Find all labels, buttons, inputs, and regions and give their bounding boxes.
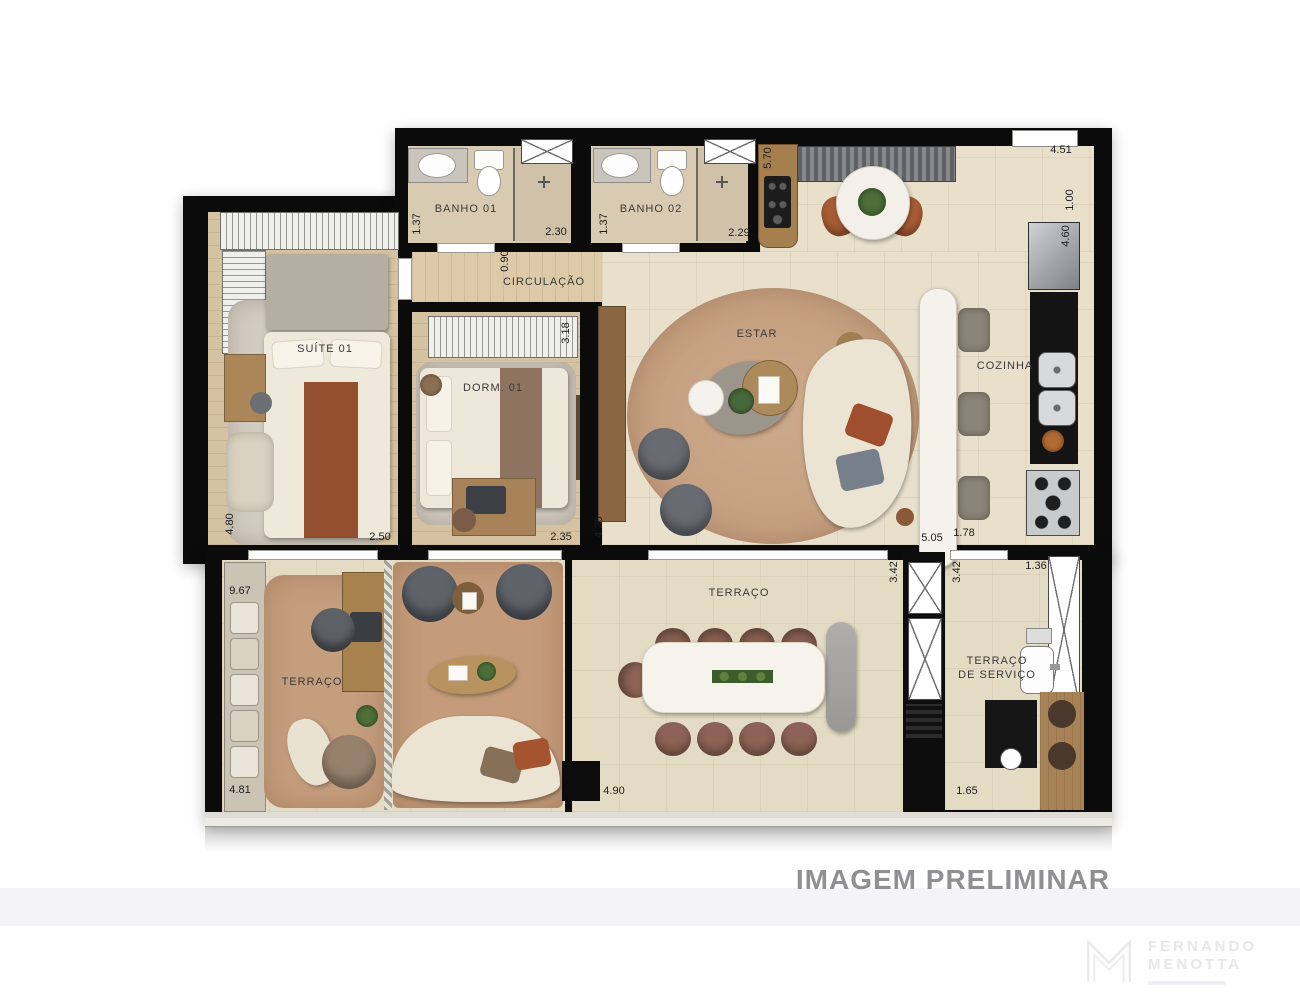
lounge-side-table-book: [462, 592, 477, 610]
terraco-chair-b4: [781, 722, 817, 756]
servico-small-box: [1026, 628, 1052, 644]
dimension-label: 1.00: [1064, 189, 1076, 210]
estar-side-table-white: [688, 380, 724, 416]
estar-tv-console: [598, 306, 626, 522]
logo-monogram-icon: [1083, 935, 1135, 987]
servico-door: [950, 550, 1008, 560]
kitchen-sink-2: [1038, 390, 1076, 426]
suite-door: [398, 258, 412, 300]
terraco-stone-bench: [826, 622, 856, 732]
dimension-label: 4.20: [593, 516, 605, 537]
terraco-black-column: [562, 761, 600, 801]
dimension-label: 2.50: [369, 531, 390, 543]
dimension-label: 2.30: [545, 226, 566, 238]
room-label-banho02: BANHO 02: [620, 203, 682, 215]
estar-book: [758, 376, 780, 404]
dimension-label: 1.36: [1025, 560, 1046, 572]
page: BANHO 01 BANHO 02 CIRCULAÇÃO SUÍTE 01 DO…: [0, 0, 1300, 1000]
servico-bowl: [1000, 748, 1022, 770]
banho01-door: [437, 243, 495, 253]
kitchen-stove: [1026, 470, 1080, 536]
logo-tagline: [1148, 981, 1226, 985]
banho02-drain-icon-v: [721, 176, 723, 188]
kitchen-cooktop: [764, 176, 791, 228]
suite-window: [248, 550, 378, 560]
dimension-label: 1.65: [956, 785, 977, 797]
parapet-strip-2: [205, 818, 1112, 827]
watermark-text: IMAGEM PRELIMINAR: [796, 864, 1110, 896]
dorm-desk-chair: [452, 508, 476, 532]
banho02-sink: [601, 153, 639, 178]
dimension-label: 5.70: [762, 147, 774, 168]
bench-cushion-1: [230, 602, 259, 634]
banho01-shaft-box: [521, 139, 573, 164]
shaft-box-1: [908, 562, 942, 614]
shaft-box-2: [908, 618, 942, 700]
room-label-terraco: TERRAÇO: [709, 587, 770, 599]
dimension-label: 3.42: [951, 561, 963, 582]
servico-faucet: [1050, 664, 1060, 670]
room-label-terraco-lateral: TERRAÇO: [282, 676, 343, 688]
terraco-table-planter: [712, 670, 773, 683]
room-label-cozinha: COZINHA: [977, 360, 1034, 372]
servico-stool-1: [1048, 700, 1076, 728]
terraco-chair-b3: [739, 722, 775, 756]
lounge-swivel-chair-2: [496, 564, 552, 620]
lounge-coffee-table-plant: [477, 662, 496, 681]
bench-cushion-5: [230, 746, 259, 778]
banho02-toilet: [660, 166, 684, 196]
kitchen-island: [919, 288, 957, 568]
suite-headboard-bench: [266, 254, 388, 330]
room-label-terraco-servico-line2: DE SERVIÇO: [958, 668, 1036, 682]
dimension-label: 5.05: [921, 532, 942, 544]
dimension-label: 1.37: [598, 213, 610, 234]
kitchen-stool-3: [958, 476, 990, 520]
dimension-label: 3.18: [560, 322, 572, 343]
lounge-coffee-table-book: [448, 665, 468, 681]
room-label-terraco-servico-line1: TERRAÇO: [958, 654, 1036, 668]
bench-cushion-4: [230, 710, 259, 742]
dorm-desk-computer: [466, 486, 506, 514]
room-label-suite01: SUÍTE 01: [297, 343, 353, 355]
dining-table-plant: [858, 188, 886, 216]
dimension-label: 2.35: [550, 531, 571, 543]
room-label-banho01: BANHO 01: [435, 203, 497, 215]
dimension-label: 3.42: [888, 561, 900, 582]
kitchen-fridge: [1028, 222, 1080, 290]
dimension-label: 0.90: [499, 250, 511, 271]
suite-bed-runner: [304, 382, 358, 538]
banho01-toilet: [477, 166, 501, 196]
dimension-label: 4.60: [1060, 225, 1072, 246]
logo-name-line1: FERNANDO: [1148, 939, 1257, 955]
dimension-label: 4.81: [229, 784, 250, 796]
room-label-terraco-servico: TERRAÇO DE SERVIÇO: [958, 654, 1036, 682]
dimension-label: 4.80: [224, 513, 236, 534]
suite-desk-stool: [250, 392, 272, 414]
kitchen-sink-1: [1038, 352, 1076, 388]
estar-plant: [728, 388, 754, 414]
room-label-estar: ESTAR: [737, 328, 778, 340]
kitchen-stool-2: [958, 392, 990, 436]
estar-sliding-door: [648, 550, 888, 560]
dorm-pillow-2: [426, 440, 452, 496]
banho01-drain-icon-v: [543, 176, 545, 188]
logo-name-line2: MENOTTA: [1148, 957, 1242, 973]
kitchen-deco-bowl: [1042, 430, 1064, 452]
servico-stool-2: [1048, 742, 1076, 770]
shaft-vent: [906, 704, 942, 738]
terraco-lateral-office-chair: [311, 608, 355, 652]
bench-cushion-3: [230, 674, 259, 706]
kitchen-stool-1: [958, 308, 990, 352]
terrace-divider-hatch: [384, 560, 392, 810]
terraco-lateral-plant: [356, 705, 378, 727]
dorm-wardrobe: [428, 316, 578, 358]
logo: FERNANDO MENOTTA: [1083, 933, 1293, 995]
suite-wardrobe-top: [220, 212, 399, 250]
banho02-door: [622, 243, 680, 253]
lounge-swivel-chair-1: [402, 566, 458, 622]
terraco-chair-b2: [697, 722, 733, 756]
estar-armchair-1: [638, 428, 690, 480]
dimension-label: 1.37: [411, 213, 423, 234]
terraco-chair-b1: [655, 722, 691, 756]
banho02-shaft-box: [704, 139, 756, 164]
dimension-label: 4.90: [603, 785, 624, 797]
estar-armchair-2: [660, 484, 712, 536]
estar-deco-bowl: [896, 508, 914, 526]
room-label-dorm01: DORM. 01: [463, 382, 523, 394]
dimension-label: 9.67: [229, 585, 250, 597]
banho01-sink: [418, 153, 456, 178]
room-label-circulacao: CIRCULAÇÃO: [503, 276, 585, 288]
dimension-label: 4.51: [1050, 144, 1071, 156]
dimension-label: 2.29: [728, 227, 749, 239]
terraco-lateral-armchair: [322, 735, 376, 789]
parapet-shadow: [205, 827, 1112, 853]
bench-cushion-2: [230, 638, 259, 670]
dorm-window: [428, 550, 562, 560]
suite-armchair: [226, 432, 274, 512]
dorm-bedside-lamp: [420, 374, 442, 396]
dimension-label: 1.78: [953, 527, 974, 539]
